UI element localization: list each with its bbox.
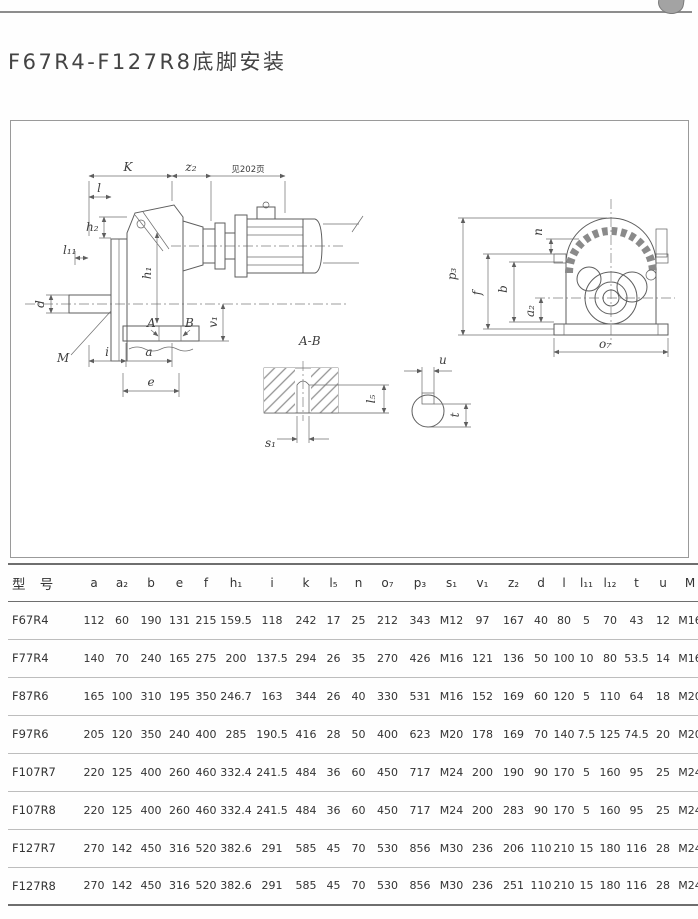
- table-row: F97R6205120350240400285190.5416285040062…: [8, 715, 698, 753]
- table-cell: 240: [166, 715, 193, 753]
- table-cell: 530: [371, 867, 404, 905]
- table-cell: 60: [346, 791, 371, 829]
- dim-label-d: d: [33, 300, 47, 308]
- dim-label-e: e: [147, 375, 154, 389]
- column-header: h₁: [219, 564, 253, 601]
- table-cell: 131: [166, 601, 193, 639]
- table-cell: 450: [371, 791, 404, 829]
- table-cell: 169: [498, 715, 529, 753]
- column-header: 型 号: [8, 564, 80, 601]
- column-header: d: [529, 564, 553, 601]
- table-cell: 270: [80, 867, 108, 905]
- table-cell: 7.5: [575, 715, 598, 753]
- table-cell: 316: [166, 829, 193, 867]
- column-header: l₁₁: [575, 564, 598, 601]
- table-cell: 43: [622, 601, 651, 639]
- table-cell: 142: [108, 829, 136, 867]
- table-cell: M16: [436, 677, 467, 715]
- dim-label-f: f: [470, 288, 484, 296]
- terminal-box: [257, 207, 275, 219]
- table-cell: M16: [675, 601, 698, 639]
- table-cell: 28: [651, 829, 675, 867]
- table-cell: 400: [193, 715, 219, 753]
- table-cell: 80: [598, 639, 622, 677]
- table-cell: 416: [291, 715, 321, 753]
- table-cell: 210: [553, 867, 575, 905]
- table-cell: M24: [675, 867, 698, 905]
- header-row: 型 号aa₂befh₁ikl₅no₇p₃s₁v₁z₂dll₁₁l₁₂tuM: [8, 564, 698, 601]
- table-cell: M12: [436, 601, 467, 639]
- catalog-page: { "page": { "title": "F67R4-F127R8底脚安装" …: [0, 0, 698, 919]
- dim-label-a: a: [145, 345, 152, 359]
- table-row: F127R7270142450316520382.629158545705308…: [8, 829, 698, 867]
- table-cell: 332.4: [219, 791, 253, 829]
- column-header: l₁₂: [598, 564, 622, 601]
- table-cell: 25: [651, 791, 675, 829]
- table-cell: 25: [346, 601, 371, 639]
- table-cell: 70: [598, 601, 622, 639]
- table-cell: 206: [498, 829, 529, 867]
- table-cell: 220: [80, 753, 108, 791]
- table-cell: 190.5: [253, 715, 291, 753]
- table-cell: 856: [404, 867, 436, 905]
- table-cell: 90: [529, 791, 553, 829]
- dim-label-h1: h₁: [140, 267, 154, 280]
- table-cell: 17: [321, 601, 346, 639]
- table-cell: M16: [436, 639, 467, 677]
- table-cell: 140: [80, 639, 108, 677]
- table-cell: 5: [575, 791, 598, 829]
- table-cell: 285: [219, 715, 253, 753]
- table-cell: M24: [675, 753, 698, 791]
- table-cell: 14: [651, 639, 675, 677]
- dim-label-l: l: [97, 181, 101, 195]
- table-cell: 460: [193, 753, 219, 791]
- dim-label-A: A: [146, 316, 156, 330]
- table-cell: 460: [193, 791, 219, 829]
- table-cell: 28: [651, 867, 675, 905]
- table-cell: 316: [166, 867, 193, 905]
- table-cell: 70: [346, 867, 371, 905]
- page-title: F67R4-F127R8底脚安装: [8, 46, 286, 76]
- table-cell: 70: [346, 829, 371, 867]
- table-cell: 26: [321, 639, 346, 677]
- table-cell: 241.5: [253, 753, 291, 791]
- table-cell: 110: [598, 677, 622, 715]
- column-header: v₁: [467, 564, 498, 601]
- column-header: z₂: [498, 564, 529, 601]
- table-cell: 350: [136, 715, 166, 753]
- table-cell: 110: [529, 829, 553, 867]
- table-cell: 64: [622, 677, 651, 715]
- model-cell: F87R6: [8, 677, 80, 715]
- table-cell: 215: [193, 601, 219, 639]
- table-cell: 18: [651, 677, 675, 715]
- dim-label-a2: a₂: [523, 305, 537, 317]
- table-cell: 400: [136, 753, 166, 791]
- table-cell: 195: [166, 677, 193, 715]
- table-cell: 70: [108, 639, 136, 677]
- table-cell: 251: [498, 867, 529, 905]
- table-cell: 116: [622, 867, 651, 905]
- table-cell: 125: [108, 791, 136, 829]
- table-cell: 60: [108, 601, 136, 639]
- dim-label-k: K: [123, 160, 134, 174]
- table-cell: 520: [193, 829, 219, 867]
- table-cell: 241.5: [253, 791, 291, 829]
- table-cell: 275: [193, 639, 219, 677]
- table-cell: 291: [253, 867, 291, 905]
- table-cell: 332.4: [219, 753, 253, 791]
- table-cell: 310: [136, 677, 166, 715]
- dim-label-o7: o₇: [599, 337, 611, 351]
- dimension-table: 型 号aa₂befh₁ikl₅no₇p₃s₁v₁z₂dll₁₁l₁₂tuM F6…: [8, 563, 698, 906]
- column-header: o₇: [371, 564, 404, 601]
- table-cell: 160: [598, 791, 622, 829]
- table-cell: 585: [291, 829, 321, 867]
- table-cell: 236: [467, 829, 498, 867]
- top-rule: [0, 11, 692, 13]
- table-cell: 137.5: [253, 639, 291, 677]
- table-row: F107R7220125400260460332.4241.5484366045…: [8, 753, 698, 791]
- table-cell: 40: [346, 677, 371, 715]
- table-cell: 585: [291, 867, 321, 905]
- dim-label-t: t: [448, 412, 462, 417]
- table-row: F107R8220125400260460332.4241.5484366045…: [8, 791, 698, 829]
- technical-drawing: K z₂ 见202页 l h₂ l₁₁ d M i a e h₁ v₁ A B: [11, 121, 688, 557]
- table-cell: 40: [529, 601, 553, 639]
- table-row: F127R8270142450316520382.629158545705308…: [8, 867, 698, 905]
- table-cell: 152: [467, 677, 498, 715]
- column-header: l: [553, 564, 575, 601]
- table-cell: 15: [575, 829, 598, 867]
- dim-label-u: u: [439, 353, 447, 367]
- dim-label-h2: h₂: [86, 220, 99, 234]
- table-cell: 45: [321, 867, 346, 905]
- table-cell: 450: [136, 867, 166, 905]
- table-cell: 400: [371, 715, 404, 753]
- table-cell: M20: [675, 677, 698, 715]
- table-cell: 53.5: [622, 639, 651, 677]
- dim-label-b: b: [496, 285, 510, 293]
- table-cell: 343: [404, 601, 436, 639]
- table-cell: 212: [371, 601, 404, 639]
- column-header: p₃: [404, 564, 436, 601]
- corner-logo: [657, 0, 686, 16]
- table-cell: 60: [529, 677, 553, 715]
- column-header: s₁: [436, 564, 467, 601]
- table-cell: 25: [651, 753, 675, 791]
- table-cell: 5: [575, 677, 598, 715]
- table-cell: 112: [80, 601, 108, 639]
- table-cell: 260: [166, 753, 193, 791]
- model-cell: F107R7: [8, 753, 80, 791]
- table-cell: 110: [529, 867, 553, 905]
- dim-label-v1: v₁: [206, 316, 220, 328]
- column-header: i: [253, 564, 291, 601]
- table-cell: 210: [553, 829, 575, 867]
- table-cell: M20: [436, 715, 467, 753]
- table-cell: 28: [321, 715, 346, 753]
- column-header: a: [80, 564, 108, 601]
- table-cell: 291: [253, 829, 291, 867]
- table-cell: 142: [108, 867, 136, 905]
- table-cell: 15: [575, 867, 598, 905]
- table-cell: 200: [467, 791, 498, 829]
- table-cell: 242: [291, 601, 321, 639]
- table-cell: 50: [346, 715, 371, 753]
- table-cell: 382.6: [219, 867, 253, 905]
- table-cell: M16: [675, 639, 698, 677]
- model-cell: F127R7: [8, 829, 80, 867]
- table-cell: 116: [622, 829, 651, 867]
- table-cell: 220: [80, 791, 108, 829]
- model-cell: F67R4: [8, 601, 80, 639]
- table-cell: 350: [193, 677, 219, 715]
- table-cell: 484: [291, 753, 321, 791]
- table-cell: 125: [598, 715, 622, 753]
- table-cell: 856: [404, 829, 436, 867]
- table-cell: 5: [575, 753, 598, 791]
- table-cell: 170: [553, 791, 575, 829]
- column-header: t: [622, 564, 651, 601]
- table-cell: 100: [108, 677, 136, 715]
- dim-label-B: B: [184, 316, 194, 330]
- table-cell: 10: [575, 639, 598, 677]
- dim-label-see-page: 见202页: [231, 165, 264, 175]
- table-cell: M20: [675, 715, 698, 753]
- table-cell: 717: [404, 753, 436, 791]
- table-cell: 484: [291, 791, 321, 829]
- table-cell: 180: [598, 867, 622, 905]
- table-cell: 450: [371, 753, 404, 791]
- table-cell: 623: [404, 715, 436, 753]
- table-row: F67R411260190131215159.51182421725212343…: [8, 601, 698, 639]
- dim-label-s1: s₁: [265, 436, 276, 450]
- table-cell: 530: [371, 829, 404, 867]
- table-cell: 240: [136, 639, 166, 677]
- table-cell: 167: [498, 601, 529, 639]
- table-cell: 426: [404, 639, 436, 677]
- table-cell: 160: [598, 753, 622, 791]
- model-cell: F77R4: [8, 639, 80, 677]
- table-cell: 100: [553, 639, 575, 677]
- table-cell: 330: [371, 677, 404, 715]
- table-cell: M30: [436, 829, 467, 867]
- table-cell: 190: [498, 753, 529, 791]
- table-cell: 717: [404, 791, 436, 829]
- column-header: f: [193, 564, 219, 601]
- table-cell: 236: [467, 867, 498, 905]
- table-cell: M24: [436, 753, 467, 791]
- column-header: n: [346, 564, 371, 601]
- gear-housing-side: [127, 205, 183, 326]
- section-label: A-B: [298, 334, 321, 348]
- table-cell: 180: [598, 829, 622, 867]
- table-cell: 200: [219, 639, 253, 677]
- dim-label-p3: p₃: [445, 268, 459, 281]
- drawing-panel: K z₂ 见202页 l h₂ l₁₁ d M i a e h₁ v₁ A B: [10, 120, 689, 558]
- column-header: l₅: [321, 564, 346, 601]
- dim-label-M: M: [56, 351, 70, 365]
- table-cell: 170: [553, 753, 575, 791]
- table-cell: 80: [553, 601, 575, 639]
- table-cell: 165: [80, 677, 108, 715]
- dim-label-i: i: [105, 345, 109, 359]
- model-cell: F127R8: [8, 867, 80, 905]
- column-header: k: [291, 564, 321, 601]
- table-cell: 165: [166, 639, 193, 677]
- table-cell: 140: [553, 715, 575, 753]
- table-cell: 97: [467, 601, 498, 639]
- model-cell: F107R8: [8, 791, 80, 829]
- table-cell: 283: [498, 791, 529, 829]
- table-cell: 74.5: [622, 715, 651, 753]
- column-header: M: [675, 564, 698, 601]
- table-cell: 36: [321, 791, 346, 829]
- table-cell: 118: [253, 601, 291, 639]
- table-cell: 60: [346, 753, 371, 791]
- dim-label-l5: l₅: [364, 394, 378, 403]
- table-cell: 70: [529, 715, 553, 753]
- table-cell: 50: [529, 639, 553, 677]
- table-cell: 190: [136, 601, 166, 639]
- table-cell: 125: [108, 753, 136, 791]
- column-header: a₂: [108, 564, 136, 601]
- table-cell: 294: [291, 639, 321, 677]
- table-cell: 120: [553, 677, 575, 715]
- table-cell: 120: [108, 715, 136, 753]
- table-cell: 270: [80, 829, 108, 867]
- table-cell: 382.6: [219, 829, 253, 867]
- table-section: 型 号aa₂befh₁ikl₅no₇p₃s₁v₁z₂dll₁₁l₁₂tuM F6…: [8, 563, 690, 906]
- table-cell: 95: [622, 791, 651, 829]
- table-cell: 178: [467, 715, 498, 753]
- shaft-section: [412, 395, 444, 427]
- table-cell: 450: [136, 829, 166, 867]
- dim-label-l11: l₁₁: [63, 243, 76, 257]
- table-cell: 246.7: [219, 677, 253, 715]
- table-row: F77R414070240165275200137.52942635270426…: [8, 639, 698, 677]
- table-cell: 121: [467, 639, 498, 677]
- table-cell: 260: [166, 791, 193, 829]
- table-cell: 136: [498, 639, 529, 677]
- table-cell: 45: [321, 829, 346, 867]
- column-header: e: [166, 564, 193, 601]
- table-cell: 90: [529, 753, 553, 791]
- table-cell: 531: [404, 677, 436, 715]
- dim-label-n: n: [531, 228, 545, 236]
- column-header: u: [651, 564, 675, 601]
- table-cell: 95: [622, 753, 651, 791]
- table-cell: 5: [575, 601, 598, 639]
- table-cell: 400: [136, 791, 166, 829]
- table-cell: 205: [80, 715, 108, 753]
- table-row: F87R6165100310195350246.7163344264033053…: [8, 677, 698, 715]
- table-cell: M24: [675, 791, 698, 829]
- table-cell: 200: [467, 753, 498, 791]
- dim-label-z2: z₂: [184, 160, 196, 174]
- table-cell: 270: [371, 639, 404, 677]
- model-cell: F97R6: [8, 715, 80, 753]
- table-cell: 159.5: [219, 601, 253, 639]
- column-header: b: [136, 564, 166, 601]
- table-cell: 344: [291, 677, 321, 715]
- table-cell: M24: [675, 829, 698, 867]
- table-cell: 36: [321, 753, 346, 791]
- table-cell: 12: [651, 601, 675, 639]
- table-cell: M30: [436, 867, 467, 905]
- table-cell: 26: [321, 677, 346, 715]
- table-cell: M24: [436, 791, 467, 829]
- table-cell: 35: [346, 639, 371, 677]
- table-cell: 20: [651, 715, 675, 753]
- table-cell: 169: [498, 677, 529, 715]
- table-cell: 163: [253, 677, 291, 715]
- table-cell: 520: [193, 867, 219, 905]
